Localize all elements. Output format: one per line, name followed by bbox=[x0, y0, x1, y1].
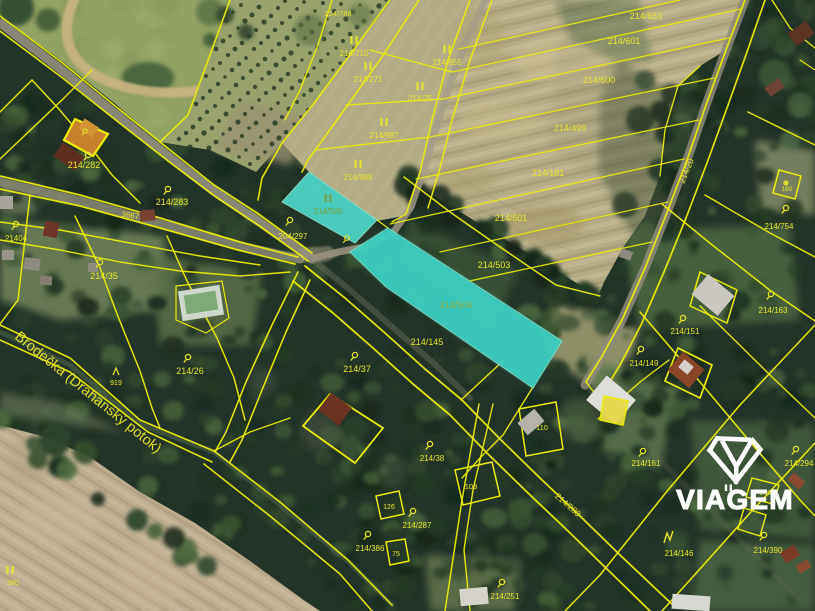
svg-text:126: 126 bbox=[383, 504, 395, 511]
svg-text:214/503: 214/503 bbox=[478, 260, 511, 270]
svg-text:214/504: 214/504 bbox=[440, 300, 473, 310]
svg-text:109: 109 bbox=[465, 482, 478, 491]
svg-text:980: 980 bbox=[7, 580, 19, 587]
svg-text:214/149: 214/149 bbox=[630, 359, 659, 368]
svg-text:214/181: 214/181 bbox=[532, 168, 565, 178]
svg-text:214/151: 214/151 bbox=[671, 327, 700, 336]
svg-text:214/600: 214/600 bbox=[583, 75, 616, 85]
svg-text:21404: 21404 bbox=[5, 234, 28, 243]
svg-text:214/38: 214/38 bbox=[420, 454, 445, 463]
svg-text:75: 75 bbox=[392, 551, 400, 558]
svg-text:214/788: 214/788 bbox=[324, 9, 351, 18]
svg-text:214/37: 214/37 bbox=[343, 364, 371, 374]
svg-text:214/655: 214/655 bbox=[433, 58, 462, 67]
svg-text:214/163: 214/163 bbox=[759, 306, 788, 315]
svg-text:214/294: 214/294 bbox=[785, 459, 814, 468]
svg-text:214/601: 214/601 bbox=[608, 36, 641, 46]
svg-text:214/390: 214/390 bbox=[754, 546, 783, 555]
svg-text:214/710: 214/710 bbox=[340, 49, 369, 58]
svg-text:214/282: 214/282 bbox=[68, 160, 101, 170]
svg-text:214/283: 214/283 bbox=[156, 197, 189, 207]
svg-text:214/500: 214/500 bbox=[314, 207, 343, 216]
svg-text:214/653: 214/653 bbox=[630, 11, 663, 21]
svg-text:214/386: 214/386 bbox=[356, 544, 385, 553]
svg-text:214/499: 214/499 bbox=[554, 123, 587, 133]
svg-text:919: 919 bbox=[110, 380, 122, 387]
svg-text:160: 160 bbox=[782, 186, 793, 193]
svg-text:214/271: 214/271 bbox=[354, 75, 383, 84]
svg-text:214/26: 214/26 bbox=[176, 366, 204, 376]
svg-text:214/146: 214/146 bbox=[665, 549, 694, 558]
svg-text:110: 110 bbox=[536, 423, 548, 432]
svg-text:214/501: 214/501 bbox=[495, 213, 528, 223]
svg-text:214/287: 214/287 bbox=[403, 521, 432, 530]
svg-text:214/987: 214/987 bbox=[370, 131, 399, 140]
svg-text:VIAGEM: VIAGEM bbox=[676, 484, 794, 515]
svg-text:204/297: 204/297 bbox=[279, 232, 308, 241]
svg-text:214/988: 214/988 bbox=[344, 173, 373, 182]
svg-text:214/145: 214/145 bbox=[411, 337, 444, 347]
svg-text:214/35: 214/35 bbox=[90, 271, 118, 281]
svg-text:214/754: 214/754 bbox=[765, 222, 794, 231]
svg-text:214/251: 214/251 bbox=[491, 592, 520, 601]
svg-text:214/161: 214/161 bbox=[632, 459, 661, 468]
svg-text:214/25: 214/25 bbox=[408, 94, 433, 103]
